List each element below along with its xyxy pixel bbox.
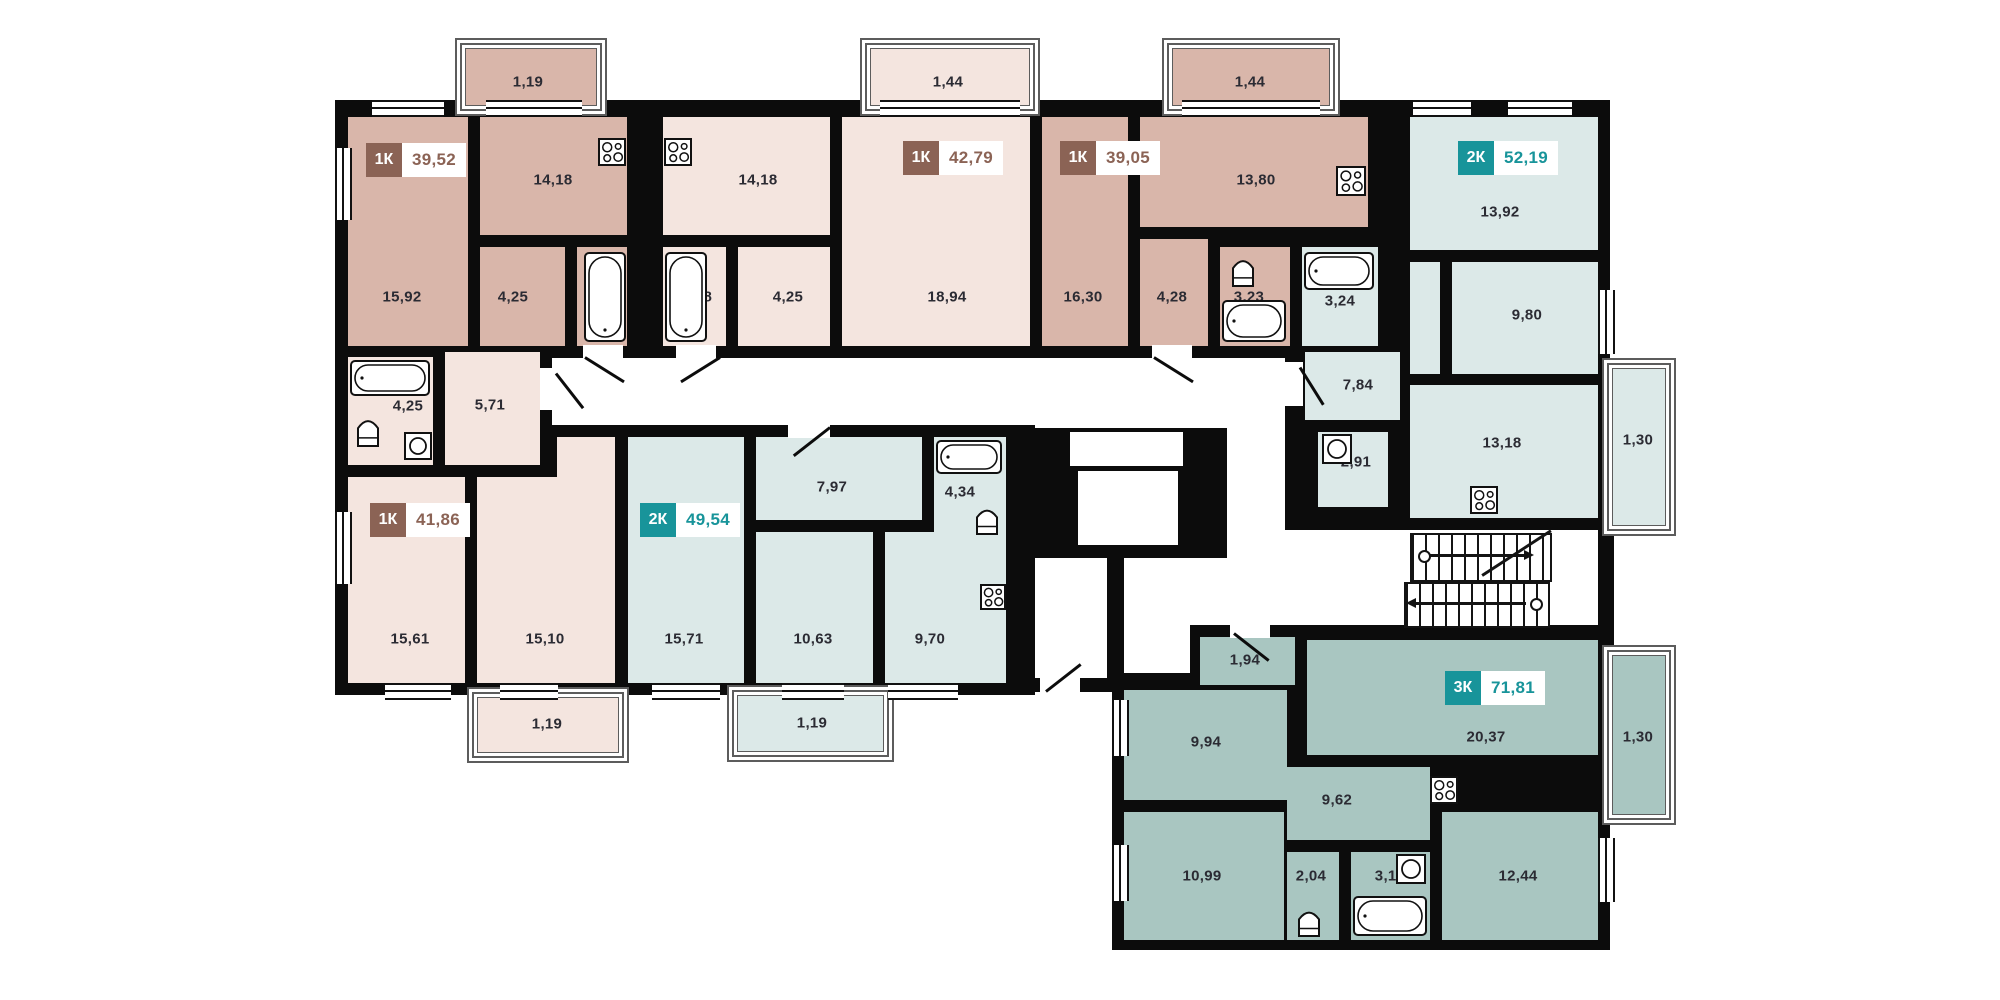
room-area-label: 20,37 <box>1466 729 1505 746</box>
room[interactable] <box>1410 117 1598 250</box>
window-icon <box>500 683 558 700</box>
window-icon <box>782 683 844 700</box>
apartment-badge[interactable]: 1К41,86 <box>370 503 470 537</box>
window-icon <box>335 148 352 220</box>
balcony-area-label: 1,44 <box>1235 74 1265 91</box>
apartment-badge[interactable]: 2К52,19 <box>1458 141 1558 175</box>
stove-icon <box>598 138 626 166</box>
tub-h-icon <box>936 440 1002 474</box>
badge-type: 2К <box>640 503 676 537</box>
wall-block <box>1107 555 1124 690</box>
toilet-icon <box>974 502 1000 536</box>
badge-area: 42,79 <box>939 141 1003 175</box>
apartment-badge[interactable]: 3К71,81 <box>1445 671 1545 705</box>
room-area-label: 16,30 <box>1063 289 1102 306</box>
toilet-icon <box>355 412 381 448</box>
door-swing-line <box>680 356 721 383</box>
room-area-label: 14,18 <box>533 172 572 189</box>
stove-icon <box>980 584 1006 610</box>
tub-h-icon <box>1304 252 1374 290</box>
door-opening <box>540 368 553 410</box>
badge-type: 3К <box>1445 671 1481 705</box>
room-area-label: 13,18 <box>1482 435 1521 452</box>
apartment-badge[interactable]: 2К49,54 <box>640 503 740 537</box>
room-area-label: 4,34 <box>945 484 975 501</box>
window-icon <box>652 683 720 700</box>
stair-flight-lower <box>1404 582 1550 628</box>
stove-icon <box>664 138 692 166</box>
room-area-label: 9,94 <box>1191 734 1221 751</box>
window-icon <box>1598 838 1615 902</box>
door-swing-line <box>555 373 584 410</box>
window-icon <box>1182 100 1320 117</box>
tub-v-icon <box>665 252 707 342</box>
badge-type: 1К <box>370 503 406 537</box>
badge-type: 2К <box>1458 141 1494 175</box>
toilet-icon <box>1296 904 1322 938</box>
room-area-label: 9,80 <box>1512 307 1542 324</box>
balcony-area-label: 1,30 <box>1623 432 1653 449</box>
tub-h-icon <box>1222 300 1286 342</box>
room[interactable] <box>1287 767 1430 840</box>
badge-area: 41,86 <box>406 503 470 537</box>
window-icon <box>372 100 444 117</box>
room[interactable] <box>1410 385 1598 518</box>
badge-area: 39,52 <box>402 143 466 177</box>
stove-icon <box>1336 166 1366 196</box>
window-icon <box>1413 100 1471 117</box>
room-area-label: 13,92 <box>1480 204 1519 221</box>
badge-type: 1К <box>1060 141 1096 175</box>
room-area-label: 4,25 <box>773 289 803 306</box>
apartment-badge[interactable]: 1К39,52 <box>366 143 466 177</box>
washer-icon <box>404 432 432 460</box>
balcony-area-label: 1,19 <box>797 715 827 732</box>
toilet-icon <box>1230 252 1256 288</box>
room-area-label: 7,97 <box>817 479 847 496</box>
door-opening <box>1152 345 1192 358</box>
window-icon <box>486 100 582 117</box>
room[interactable] <box>477 477 615 683</box>
wall-block <box>1112 673 1200 690</box>
room-area-label: 15,10 <box>525 631 564 648</box>
room-area-label: 15,61 <box>390 631 429 648</box>
window-icon <box>1112 700 1129 756</box>
room[interactable] <box>756 532 873 683</box>
stair-start-marker <box>1418 550 1431 563</box>
washer-icon <box>1396 854 1426 884</box>
window-icon <box>335 512 352 584</box>
door-swing-line <box>584 356 625 383</box>
stair-arrow-down-icon <box>1406 598 1416 608</box>
badge-type: 1К <box>903 141 939 175</box>
washer-icon <box>1322 434 1352 464</box>
balcony-area-label: 1,19 <box>513 74 543 91</box>
room-area-label: 1,94 <box>1230 652 1260 669</box>
elevator-door-niche <box>1070 432 1183 466</box>
badge-area: 49,54 <box>676 503 740 537</box>
room-area-label: 4,25 <box>498 289 528 306</box>
room-area-label: 3,24 <box>1325 293 1355 310</box>
window-icon <box>385 683 451 700</box>
room-area-label: 9,62 <box>1322 792 1352 809</box>
room-area-label: 4,25 <box>393 398 423 415</box>
stove-icon <box>1470 486 1498 514</box>
balcony-area-label: 1,30 <box>1623 729 1653 746</box>
stove-icon <box>1430 776 1458 804</box>
stair-arrow-line <box>1416 602 1526 605</box>
tub-v-icon <box>584 252 626 342</box>
stair-arrow-line <box>1428 554 1524 557</box>
room-area-label: 15,92 <box>382 289 421 306</box>
badge-area: 39,05 <box>1096 141 1160 175</box>
badge-area: 52,19 <box>1494 141 1558 175</box>
door-opening <box>676 345 716 358</box>
window-icon <box>1112 845 1129 901</box>
room-area-label: 18,94 <box>927 289 966 306</box>
balcony-area-label: 1,19 <box>532 716 562 733</box>
apartment-badge[interactable]: 1К42,79 <box>903 141 1003 175</box>
room-area-label: 14,18 <box>738 172 777 189</box>
door-opening <box>583 345 623 358</box>
room-area-label: 10,99 <box>1182 868 1221 885</box>
tub-h-icon <box>350 360 430 396</box>
window-icon <box>888 683 958 700</box>
balcony-area-label: 1,44 <box>933 74 963 91</box>
room-area-label: 15,71 <box>664 631 703 648</box>
tub-h-icon <box>1353 896 1427 936</box>
wall-block <box>1598 517 1614 647</box>
room-area-label: 7,84 <box>1343 377 1373 394</box>
room-area-label: 4,28 <box>1157 289 1187 306</box>
room-area-label: 9,70 <box>915 631 945 648</box>
stair-start-marker <box>1530 598 1543 611</box>
room-area-label: 13,80 <box>1236 172 1275 189</box>
floor-plan-canvas: 15,9214,184,253,981,191К39,5214,1818,944… <box>0 0 2000 1000</box>
room-area-label: 5,71 <box>475 397 505 414</box>
apartment-badge[interactable]: 1К39,05 <box>1060 141 1160 175</box>
stair-arrow-up-icon <box>1524 550 1534 560</box>
room-area-label: 12,44 <box>1498 868 1537 885</box>
door-swing-line <box>1153 356 1194 383</box>
window-icon <box>1598 290 1615 354</box>
window-icon <box>880 100 1020 117</box>
room-area-label: 2,04 <box>1296 868 1326 885</box>
badge-type: 1К <box>366 143 402 177</box>
badge-area: 71,81 <box>1481 671 1545 705</box>
window-icon <box>1508 100 1572 117</box>
elevator-car <box>1075 468 1181 548</box>
room[interactable] <box>1410 262 1440 374</box>
room-area-label: 10,63 <box>793 631 832 648</box>
room[interactable] <box>557 437 615 481</box>
